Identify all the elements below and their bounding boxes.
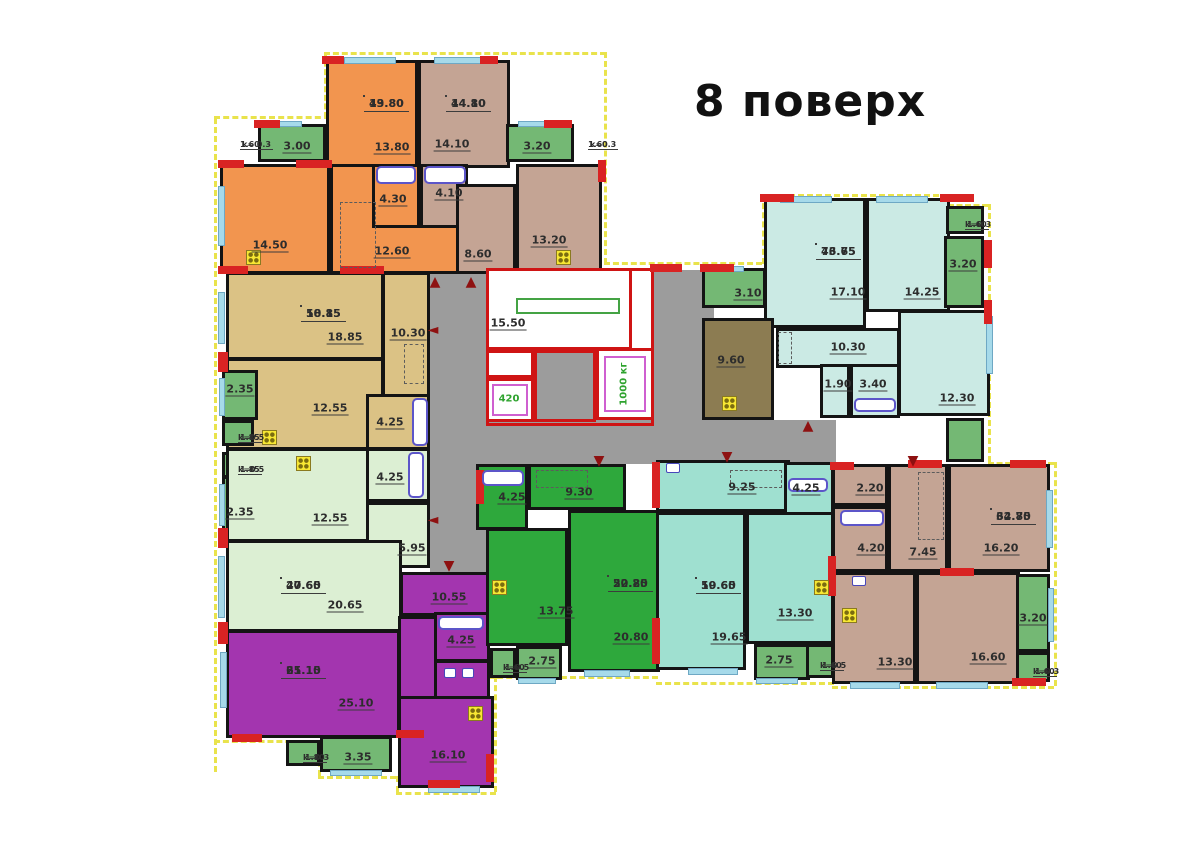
room-area-label-16: 12.55 xyxy=(312,513,349,526)
room-area-label-27: 13.75 xyxy=(538,606,575,619)
red-wall-accent-28 xyxy=(940,194,974,202)
red-wall-accent-3 xyxy=(544,120,572,128)
apartment-area-box-5-bottom: 52.25 xyxy=(608,576,653,591)
room-area-label-14: 2.35 xyxy=(225,384,254,397)
room-14-50 xyxy=(220,164,330,274)
room-area-label-40: 16.60 xyxy=(970,652,1007,665)
apartment-area-box-5: 20.8052.25 xyxy=(607,575,609,577)
room-area-label-13: 4.25 xyxy=(375,417,404,430)
apartment-area-box-4-bottom: 61.15 xyxy=(281,663,326,678)
window-16 xyxy=(850,682,900,689)
red-wall-accent-13 xyxy=(396,730,424,738)
balcony-coef-label-3-bottom: k=0.5 xyxy=(238,465,264,474)
red-wall-accent-23 xyxy=(940,568,974,576)
room-area-label-34: 2.75 xyxy=(764,655,793,668)
room-area-label-39: 13.30 xyxy=(877,657,914,670)
red-wall-accent-2 xyxy=(254,120,280,128)
room-area-label-48: 3.40 xyxy=(858,379,887,392)
red-wall-accent-12 xyxy=(232,734,262,742)
stair-area-label: 15.50 xyxy=(490,318,527,331)
building-outline-11 xyxy=(1054,462,1057,686)
apartment-area-box-2: 18.8550.15 xyxy=(300,305,302,307)
window-0 xyxy=(344,57,396,64)
apartment-area-box-1: 14.1044.80 xyxy=(445,95,447,97)
red-wall-accent-30 xyxy=(984,300,992,324)
room-area-label-2: 14.10 xyxy=(434,139,471,152)
wc-purple xyxy=(434,660,490,700)
room-area-label-32: 19.65 xyxy=(711,632,748,645)
entrance-arrow-down-5: ▼ xyxy=(594,454,605,468)
bathtub-icon-2 xyxy=(412,398,428,446)
apartment-area-box-6: 19.6550.60 xyxy=(695,577,697,579)
window-22 xyxy=(1046,490,1053,548)
room-area-label-23: 16.10 xyxy=(430,750,467,763)
balcony-coef-label-0-bottom: 1.60 xyxy=(240,140,260,149)
apartment-area-box-0: 13.8049.80 xyxy=(363,95,365,97)
bathtub-icon-7 xyxy=(840,510,884,526)
building-outline-5 xyxy=(604,262,762,265)
bathtub-icon-1 xyxy=(424,166,466,184)
floor-plan: 8 поверх 4201000 кг15.50▲▲◄◄▼▼▼▲▼3.0013.… xyxy=(0,0,1200,849)
balcony-small-right xyxy=(946,418,984,462)
bathtub-icon-4 xyxy=(438,616,484,630)
room-area-label-12: 12.55 xyxy=(312,403,349,416)
room-area-label-30: 9.25 xyxy=(727,482,756,495)
room-area-label-33: 13.30 xyxy=(777,608,814,621)
stove-icon-2 xyxy=(262,430,277,445)
building-outline-15 xyxy=(494,676,497,792)
balcony-3-20-topright xyxy=(944,236,984,308)
balcony-coef-label-6-bottom: k=0.5 xyxy=(820,661,846,670)
room-area-label-42: 3.10 xyxy=(733,288,762,301)
red-wall-accent-18 xyxy=(652,618,660,664)
wardrobe-0 xyxy=(340,202,376,268)
wardrobe-5 xyxy=(778,332,792,364)
kitchen-9-60 xyxy=(702,318,774,420)
room-area-label-11: 10.30 xyxy=(390,328,427,341)
building-outline-1 xyxy=(214,116,330,119)
balcony-coef-label-7-bottom: k=0.3 xyxy=(1033,667,1059,676)
room-area-label-29: 2.75 xyxy=(527,656,556,669)
entrance-arrow-down-4: ▼ xyxy=(444,559,455,573)
room-area-label-5: 4.30 xyxy=(378,194,407,207)
apartment-area-box-3: 20.6547.60 xyxy=(280,577,282,579)
room-area-label-46: 10.30 xyxy=(830,342,867,355)
balcony-coef-label-8-bottom: k=0.3 xyxy=(965,220,991,229)
room-area-label-43: 9.60 xyxy=(716,355,745,368)
red-wall-accent-14 xyxy=(428,780,460,788)
room-area-label-24: 3.35 xyxy=(343,752,372,765)
red-wall-accent-19 xyxy=(830,462,854,470)
building-outline-4 xyxy=(604,52,607,264)
stove-icon-5 xyxy=(492,580,507,595)
room-16-60 xyxy=(916,572,1020,684)
apartment-area-box-2-bottom: 50.15 xyxy=(301,306,346,321)
red-wall-accent-24 xyxy=(1012,678,1046,686)
apartment-area-box-7: 32.8064.75 xyxy=(990,508,992,510)
room-17-10 xyxy=(764,198,866,328)
window-15 xyxy=(688,668,738,675)
stove-icon-7 xyxy=(842,608,857,623)
stove-icon-8 xyxy=(722,396,737,411)
window-10 xyxy=(330,770,382,776)
room-area-label-20: 10.55 xyxy=(431,592,468,605)
room-area-label-4: 14.50 xyxy=(252,240,289,253)
building-outline-0 xyxy=(214,118,217,772)
window-13 xyxy=(756,678,798,684)
balcony-coef-label-1-bottom: 1.60 xyxy=(588,140,608,149)
window-23 xyxy=(1048,588,1054,642)
apartment-area-box-7-bottom: 64.75 xyxy=(991,509,1036,524)
wardrobe-2 xyxy=(918,472,944,540)
sink-icon-2 xyxy=(852,576,866,586)
entrance-arrow-down-6: ▼ xyxy=(722,450,733,464)
red-wall-accent-20 xyxy=(828,556,836,596)
bathtub-icon-6 xyxy=(854,398,896,412)
red-wall-accent-9 xyxy=(218,352,228,372)
floor-title: 8 поверх xyxy=(694,76,926,127)
apartment-area-box-4: 25.1061.15 xyxy=(280,662,282,664)
room-area-label-7: 12.60 xyxy=(374,246,411,259)
room-area-label-9: 13.20 xyxy=(531,235,568,248)
window-5 xyxy=(218,292,225,344)
bathtub-icon-5 xyxy=(482,470,524,486)
red-wall-accent-25 xyxy=(650,264,682,272)
building-outline-13 xyxy=(656,682,834,685)
window-6 xyxy=(219,378,225,416)
entrance-arrow-up-1: ▲ xyxy=(466,275,477,289)
room-area-label-8: 8.60 xyxy=(463,249,492,262)
apartment-area-box-6-bottom: 50.60 xyxy=(696,578,741,593)
red-wall-accent-29 xyxy=(984,240,992,268)
red-wall-accent-1 xyxy=(480,56,498,64)
room-area-label-25: 4.25 xyxy=(497,492,526,505)
corridor-bottom xyxy=(430,420,836,464)
red-wall-accent-26 xyxy=(700,264,734,272)
lift-label-1: 1000 кг xyxy=(619,362,630,405)
entrance-arrow-up-0: ▲ xyxy=(430,275,441,289)
window-21 xyxy=(986,316,993,374)
core-vestibule xyxy=(534,350,596,422)
room-area-label-17: 4.25 xyxy=(375,472,404,485)
bathtub-icon-3 xyxy=(408,452,424,498)
room-area-label-15: 2.35 xyxy=(225,507,254,520)
room-area-label-35: 2.20 xyxy=(855,483,884,496)
room-area-label-22: 4.25 xyxy=(446,635,475,648)
room-area-label-38: 16.20 xyxy=(983,543,1020,556)
lift-label-0: 420 xyxy=(499,394,520,405)
red-wall-accent-8 xyxy=(598,160,606,182)
sink-icon-1 xyxy=(462,668,474,678)
balcony-coef-label-2-bottom: k=0.5 xyxy=(238,433,264,442)
stove-icon-4 xyxy=(468,706,483,721)
building-outline-18 xyxy=(318,776,396,779)
room-14-10 xyxy=(418,60,510,168)
red-wall-accent-0 xyxy=(322,56,344,64)
room-area-label-21: 25.10 xyxy=(338,698,375,711)
room-area-label-31: 4.25 xyxy=(791,483,820,496)
stove-icon-1 xyxy=(556,250,571,265)
room-area-label-36: 4.20 xyxy=(856,543,885,556)
room-area-label-49: 12.30 xyxy=(939,393,976,406)
room-area-label-26: 9.30 xyxy=(564,487,593,500)
room-area-label-3: 3.20 xyxy=(522,141,551,154)
sink-icon-3 xyxy=(666,463,680,473)
red-wall-accent-22 xyxy=(1010,460,1046,468)
entrance-arrow-down-8: ▼ xyxy=(908,454,919,468)
entrance-arrow-left-2: ◄ xyxy=(428,323,439,337)
window-17 xyxy=(936,682,988,689)
red-wall-accent-15 xyxy=(486,754,494,782)
window-9 xyxy=(220,652,227,708)
apartment-area-box-1-bottom: 44.80 xyxy=(446,96,491,111)
room-area-label-50: 3.20 xyxy=(948,259,977,272)
sink-icon-0 xyxy=(444,668,456,678)
core-cell xyxy=(486,350,534,378)
window-4 xyxy=(218,186,225,246)
room-area-label-45: 14.25 xyxy=(904,287,941,300)
room-area-label-37: 7.45 xyxy=(908,547,937,560)
wardrobe-1 xyxy=(404,344,424,384)
stair-handrail xyxy=(516,298,620,314)
room-area-label-0: 3.00 xyxy=(282,141,311,154)
room-area-label-1: 13.80 xyxy=(374,142,411,155)
window-12 xyxy=(518,678,556,684)
room-area-label-10: 18.85 xyxy=(327,332,364,345)
apartment-area-box-3-bottom: 47.60 xyxy=(281,578,326,593)
entrance-arrow-up-7: ▲ xyxy=(803,419,814,433)
window-14 xyxy=(584,670,630,677)
building-outline-3 xyxy=(324,52,606,55)
window-8 xyxy=(218,556,225,618)
apartment-area-box-8-bottom: 76.75 xyxy=(816,244,861,259)
room-area-label-19: 20.65 xyxy=(327,600,364,613)
red-wall-accent-27 xyxy=(760,194,794,202)
room-25-10 xyxy=(226,630,400,738)
red-wall-accent-5 xyxy=(296,160,332,168)
balcony-coef-label-5-bottom: k=0.5 xyxy=(503,663,529,672)
room-area-label-47: 1.90 xyxy=(823,379,852,392)
window-19 xyxy=(876,196,928,203)
red-wall-accent-6 xyxy=(218,266,248,274)
red-wall-accent-4 xyxy=(218,160,244,168)
red-wall-accent-11 xyxy=(218,622,228,644)
bathtub-icon-0 xyxy=(376,166,416,184)
window-7 xyxy=(219,484,225,526)
stove-icon-3 xyxy=(296,456,311,471)
apartment-area-box-8: 43.6576.75 xyxy=(815,243,817,245)
entrance-arrow-left-3: ◄ xyxy=(428,513,439,527)
balcony-coef-label-4-bottom: k=0.3 xyxy=(303,753,329,762)
room-area-label-44: 17.10 xyxy=(830,287,867,300)
kitchen-13-30-teal xyxy=(746,512,834,644)
room-area-label-6: 4.10 xyxy=(434,188,463,201)
red-wall-accent-17 xyxy=(652,462,660,508)
room-area-label-41: 3.20 xyxy=(1018,613,1047,626)
red-wall-accent-10 xyxy=(218,528,228,548)
stove-icon-6 xyxy=(814,580,829,595)
apartment-area-box-0-bottom: 49.80 xyxy=(364,96,409,111)
room-area-label-18: 5.95 xyxy=(397,543,426,556)
room-area-label-28: 20.80 xyxy=(613,632,650,645)
